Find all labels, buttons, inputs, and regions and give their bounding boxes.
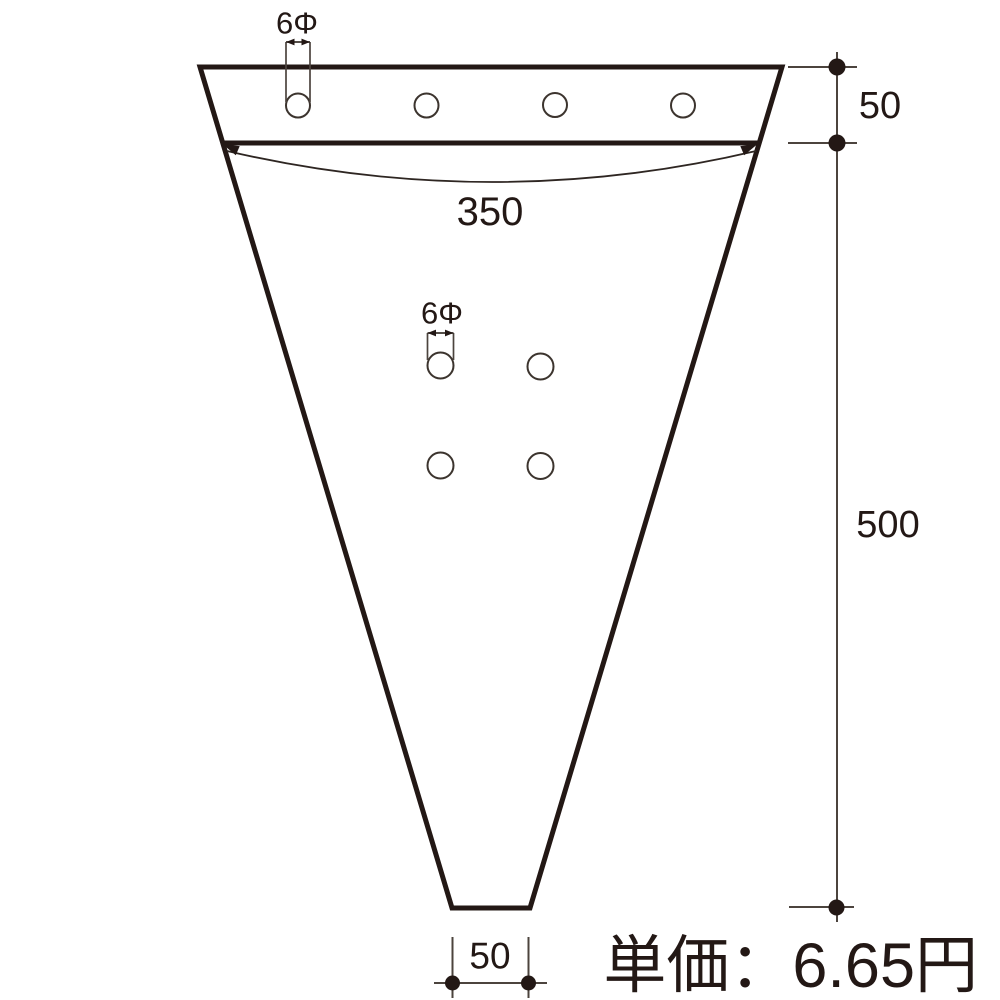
dimension-dot-right xyxy=(521,976,536,991)
unit-price-text: 単価：6.65円 xyxy=(603,931,978,1000)
mid-hole-1 xyxy=(428,353,454,379)
curved-dimension-line xyxy=(227,151,756,182)
dimension-dot-top xyxy=(829,59,846,76)
mid-hole-4 xyxy=(528,453,554,479)
bottom-width-dimension: 50 xyxy=(434,936,547,999)
dimension-dot-middle xyxy=(829,135,846,152)
band-height-label: 50 xyxy=(859,85,901,127)
body-height-label: 500 xyxy=(856,504,919,546)
top-width-dimension: 350 xyxy=(223,145,757,235)
mid-hole-diameter-callout: 6Φ xyxy=(421,296,463,361)
flower-sleeve-technical-drawing: 6Φ 6Φ 350 50 500 xyxy=(0,0,1000,1000)
drawing-canvas: 6Φ 6Φ 350 50 500 xyxy=(0,0,1000,1000)
dimension-dot-bottom xyxy=(829,900,845,916)
mid-hole-diameter-label: 6Φ xyxy=(421,296,463,331)
arrowhead-left xyxy=(428,330,437,337)
top-hole-3 xyxy=(543,93,567,117)
right-dimension-chain: 50 500 xyxy=(788,52,920,922)
top-hole-diameter-label: 6Φ xyxy=(276,6,318,41)
top-hole-2 xyxy=(415,94,439,118)
top-hole-diameter-callout: 6Φ xyxy=(276,6,318,103)
mid-hole-grid xyxy=(428,353,554,480)
top-hole-1 xyxy=(286,94,310,118)
dimension-dot-left xyxy=(445,976,460,991)
mid-hole-2 xyxy=(528,354,554,380)
top-hole-row xyxy=(286,93,695,118)
mid-hole-3 xyxy=(428,453,454,479)
top-hole-4 xyxy=(671,94,695,118)
top-width-label: 350 xyxy=(457,190,524,234)
arrowhead-right xyxy=(445,330,454,337)
bottom-width-label: 50 xyxy=(469,936,510,977)
